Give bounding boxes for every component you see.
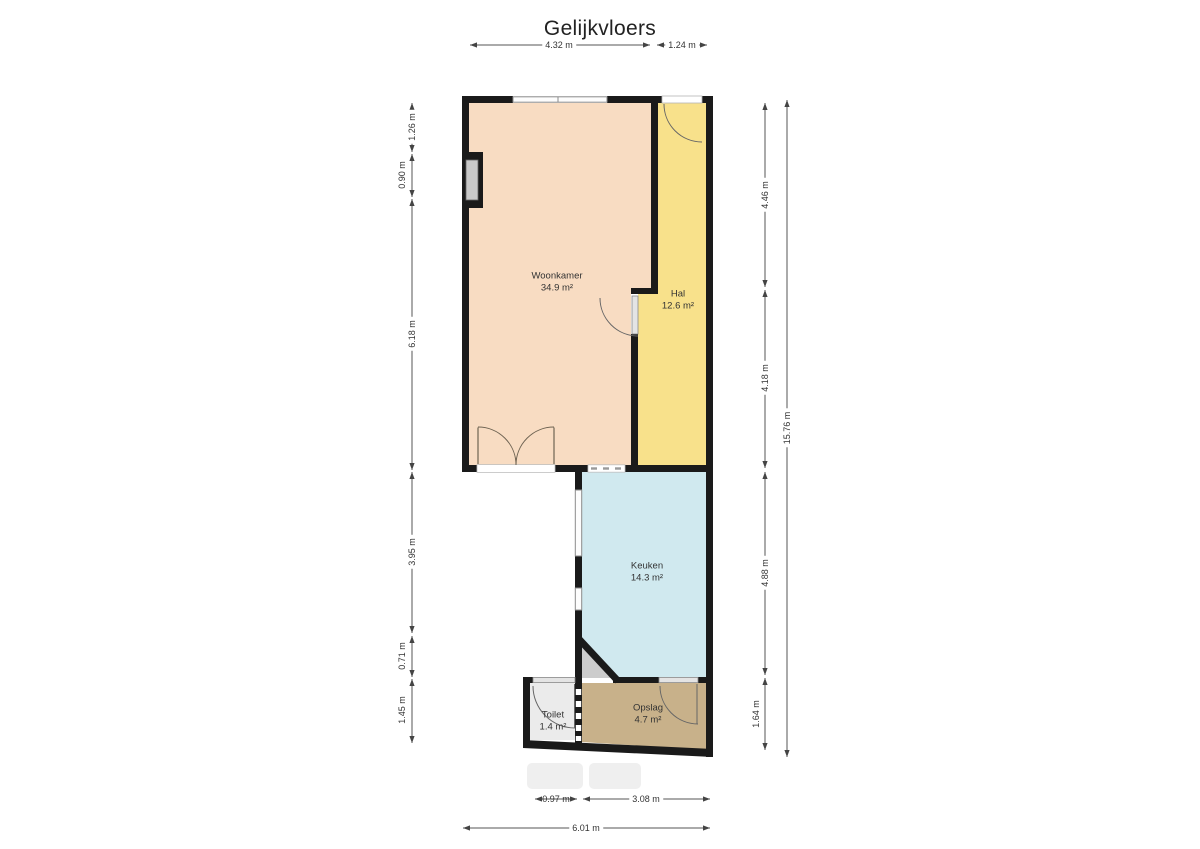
room-name: Woonkamer — [531, 271, 582, 283]
opening-woonkamer-keuken — [588, 465, 625, 472]
dim-label: 0.71 m — [397, 639, 407, 673]
floorplan-page: Gelijkvloers — [0, 0, 1200, 849]
room-label-hal: Hal 12.6 m² — [662, 289, 694, 312]
dim-label: 6.01 m — [569, 823, 603, 833]
room-name: Keuken — [631, 561, 663, 573]
watermark — [589, 763, 641, 789]
room-label-opslag: Opslag 4.7 m² — [633, 703, 663, 726]
dim-label: 1.24 m — [665, 40, 699, 50]
dim-label: 15.76 m — [782, 409, 792, 448]
dim-label: 4.32 m — [542, 40, 576, 50]
room-name: Opslag — [633, 703, 663, 715]
dim-label: 3.95 m — [407, 535, 417, 569]
dim-label: 6.18 m — [407, 317, 417, 351]
dim-label: 1.64 m — [751, 697, 761, 731]
dim-label: 1.26 m — [407, 110, 417, 144]
dim-label: 0.90 m — [397, 158, 407, 192]
watermark — [527, 763, 583, 789]
room-label-keuken: Keuken 14.3 m² — [631, 561, 663, 584]
room-area: 1.4 m² — [540, 721, 567, 733]
dim-label: 4.18 m — [760, 361, 770, 395]
window-keuken-2 — [575, 588, 581, 610]
floorplan-canvas — [0, 0, 1200, 849]
room-area: 4.7 m² — [633, 714, 663, 726]
window-top — [513, 97, 607, 102]
chimney-flue — [466, 160, 478, 200]
dim-label: 0.97 m — [539, 794, 573, 804]
dim-label: 3.08 m — [629, 794, 663, 804]
room-label-woonkamer: Woonkamer 34.9 m² — [531, 271, 582, 294]
room-area: 14.3 m² — [631, 572, 663, 584]
room-area: 34.9 m² — [531, 282, 582, 294]
room-area: 12.6 m² — [662, 300, 694, 312]
window-keuken-1 — [575, 490, 581, 556]
room-label-toilet: Toilet 1.4 m² — [540, 710, 567, 733]
dim-label: 4.46 m — [760, 178, 770, 212]
dim-label: 4.88 m — [760, 556, 770, 590]
room-name: Hal — [662, 289, 694, 301]
dim-label: 1.45 m — [397, 693, 407, 727]
room-name: Toilet — [540, 710, 567, 722]
